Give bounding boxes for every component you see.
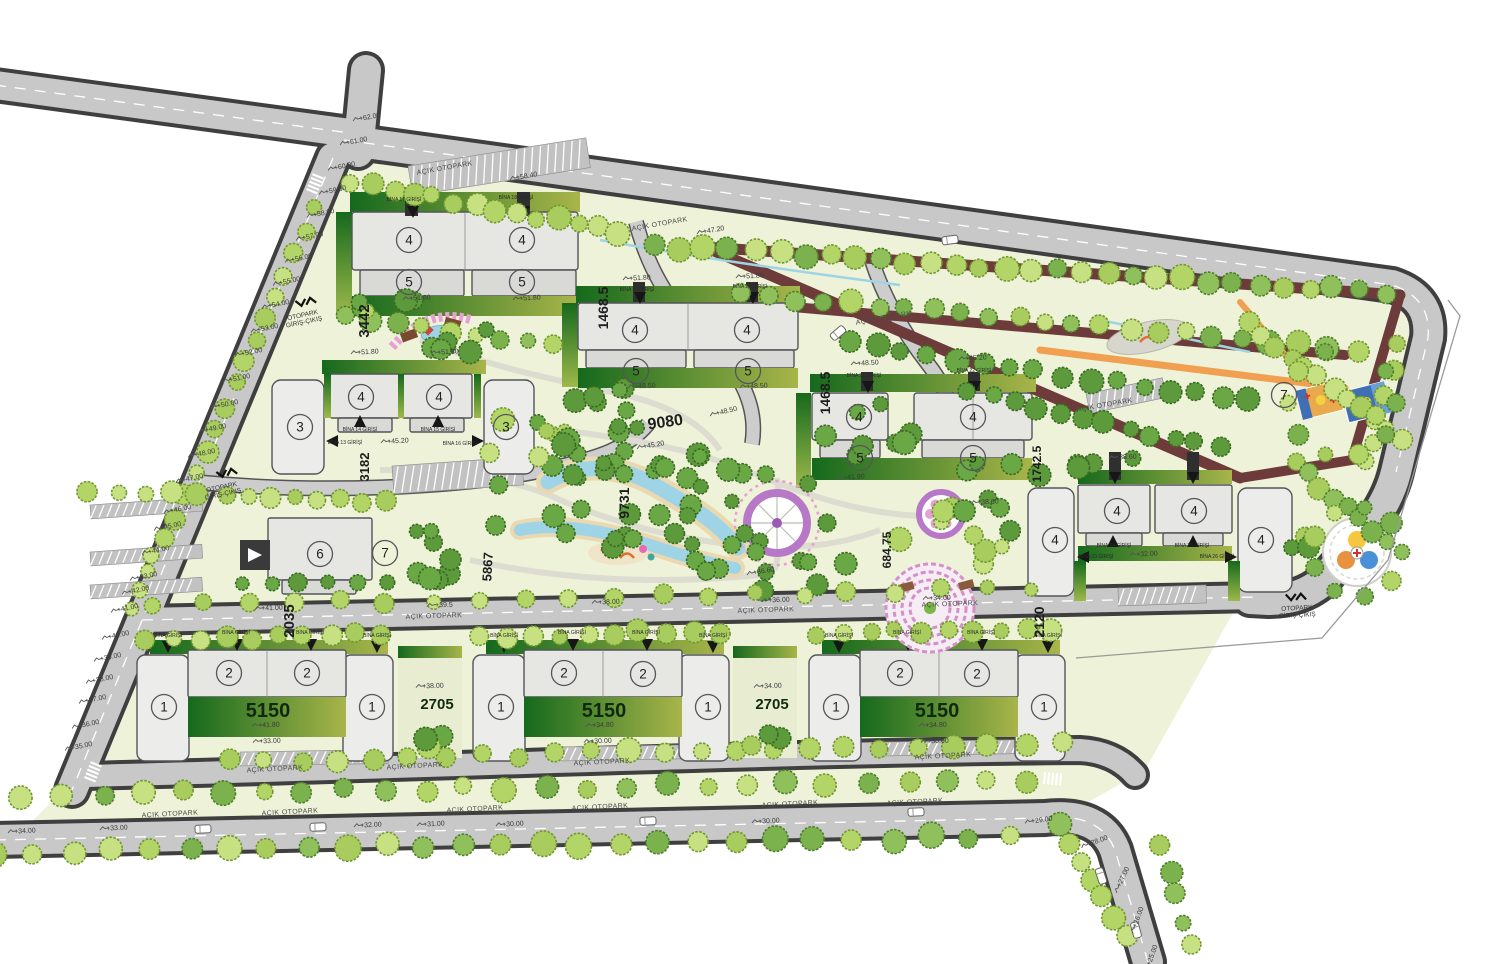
- area-figure: 1468.5: [595, 286, 611, 329]
- tree: [1063, 315, 1080, 332]
- strip-a: [352, 296, 578, 316]
- tree: [886, 585, 903, 602]
- tree: [1108, 372, 1125, 389]
- building-entrance-label: BİNA GİRİŞİ: [154, 632, 182, 639]
- car: [640, 817, 656, 826]
- tree: [605, 222, 629, 246]
- tree: [220, 749, 240, 769]
- tree: [288, 490, 303, 505]
- tree: [559, 590, 576, 607]
- tree: [1071, 262, 1092, 283]
- tree: [1197, 272, 1219, 294]
- elevation-label: +45.20: [965, 354, 987, 362]
- tree: [843, 246, 866, 269]
- tree: [665, 524, 685, 544]
- tree: [557, 524, 575, 542]
- tree: [1125, 267, 1143, 285]
- tree: [611, 834, 632, 855]
- tree: [1016, 771, 1038, 793]
- tree: [64, 842, 86, 864]
- tree: [410, 524, 424, 538]
- tree: [584, 387, 604, 407]
- unit-number: 4: [743, 323, 751, 338]
- tree: [211, 781, 236, 806]
- tree: [891, 343, 908, 360]
- tree: [144, 598, 160, 614]
- gap-hedge-2: [733, 646, 797, 658]
- tree: [630, 421, 644, 435]
- tree: [579, 781, 597, 799]
- tree: [958, 383, 975, 400]
- tree: [1011, 307, 1029, 325]
- hedge-c: [322, 360, 486, 374]
- tree: [800, 554, 816, 570]
- elevation-label: +41.80: [258, 722, 280, 730]
- tree: [566, 833, 592, 859]
- tree: [799, 738, 820, 759]
- tree: [970, 259, 988, 277]
- plaza1-center: [772, 518, 782, 528]
- tree: [77, 482, 97, 502]
- tree: [1051, 404, 1070, 423]
- tree: [423, 187, 439, 203]
- tree: [9, 786, 32, 809]
- elevation-label: +41.90: [843, 473, 865, 481]
- tree: [604, 625, 625, 646]
- tree: [797, 588, 813, 604]
- tree: [976, 734, 998, 756]
- car: [195, 825, 211, 834]
- unit-number: 4: [631, 323, 639, 338]
- car-body: [908, 808, 924, 817]
- car-body: [310, 823, 326, 832]
- tree: [510, 749, 528, 767]
- tree: [1059, 834, 1080, 855]
- tree: [1288, 361, 1308, 381]
- tree: [1137, 379, 1153, 395]
- unit-number: 4: [405, 233, 413, 248]
- building-entrance-label: BİNA 16 GİRİŞİ: [443, 440, 478, 447]
- tree: [1185, 432, 1202, 449]
- tree: [723, 536, 740, 553]
- tree: [1222, 273, 1242, 293]
- tree: [1123, 421, 1139, 437]
- tree: [1020, 260, 1042, 282]
- tree: [1358, 501, 1372, 515]
- tree: [654, 584, 673, 603]
- tree: [132, 781, 156, 805]
- tree: [1144, 266, 1167, 289]
- tree: [700, 779, 717, 796]
- tree: [321, 575, 335, 589]
- tree: [459, 340, 482, 363]
- tree: [1350, 280, 1368, 298]
- elevation-label: +45.20: [387, 437, 409, 445]
- tree: [836, 582, 855, 601]
- hedge-f: [1078, 470, 1232, 484]
- tree: [414, 318, 429, 333]
- tree: [800, 476, 816, 492]
- tree: [726, 832, 747, 853]
- lawn-b-left: [562, 303, 578, 387]
- elevation-label: +51.80: [409, 294, 431, 302]
- tree: [1159, 381, 1182, 404]
- unit-number: 6: [316, 547, 324, 562]
- tree: [1001, 359, 1018, 376]
- building-entrance-label: BİNA GİRİŞİ: [893, 629, 921, 636]
- elevation-label: +32.00: [1136, 550, 1158, 558]
- building-entrance-label: BİNA 24 GİRİŞİ: [1097, 542, 1132, 549]
- elevation-label: +30.60: [927, 738, 949, 746]
- building-entrance-label: BİNA 22 GİRİŞİ: [957, 367, 992, 374]
- unit-number: 2: [560, 666, 568, 681]
- building-entrance-label: BİNA 23 GİRİŞİ: [1079, 553, 1114, 560]
- tree: [763, 826, 789, 852]
- tree: [617, 779, 636, 798]
- tree: [959, 830, 978, 849]
- unit-number: 5: [856, 451, 864, 466]
- tree: [413, 837, 434, 858]
- site-plan-drawing: +62.00+61.00+60.00+59.00+58.00+57.00+56.…: [0, 0, 1500, 964]
- tree: [1377, 426, 1394, 443]
- area-figure: 2035: [281, 604, 298, 637]
- building-entrance-label: BİNA GİRİŞİ: [490, 632, 518, 639]
- tree: [864, 624, 881, 641]
- tree: [737, 775, 757, 795]
- lawn-figure: 5150: [915, 700, 960, 722]
- building-entrance-label: BİNA GİRİŞİ: [363, 632, 391, 639]
- tree: [479, 322, 494, 337]
- tree: [1121, 319, 1142, 340]
- hedge-d: [810, 374, 1036, 392]
- tree: [859, 773, 879, 793]
- tree: [1348, 341, 1369, 362]
- tree: [1378, 363, 1394, 379]
- tree: [174, 780, 194, 800]
- tree: [376, 832, 399, 855]
- tree: [1006, 392, 1025, 411]
- elevation-label: +34.80: [592, 722, 614, 730]
- unit-number: 1: [704, 700, 712, 715]
- tree: [1175, 915, 1190, 930]
- lawn-a-left: [336, 212, 352, 316]
- elevation-label: +38.60: [977, 498, 999, 506]
- tree: [808, 627, 825, 644]
- tree: [454, 777, 471, 794]
- tree: [947, 255, 967, 275]
- tree: [1377, 285, 1395, 303]
- elevation-label: +32.00: [360, 821, 382, 829]
- tree: [644, 234, 665, 255]
- tree: [260, 488, 281, 509]
- unit-number: 1: [832, 700, 840, 715]
- tree: [1302, 281, 1320, 299]
- elevation-label: +33.00: [259, 738, 281, 746]
- building-entrance-label: BİNA GİRİŞİ: [967, 629, 995, 636]
- tree: [748, 585, 763, 600]
- tree: [257, 784, 273, 800]
- building-entrance-label: BİNA 18 GİRİŞİ: [499, 194, 534, 201]
- tree: [256, 839, 276, 859]
- tree: [335, 835, 361, 861]
- tower-f-right: [1238, 488, 1292, 592]
- tree: [539, 423, 554, 438]
- tree: [345, 623, 364, 642]
- tree: [563, 389, 586, 412]
- lawn-strip: [398, 374, 404, 418]
- tree: [135, 630, 155, 650]
- tree: [1379, 534, 1394, 549]
- tree: [490, 476, 508, 494]
- tree: [794, 245, 818, 269]
- tree: [1274, 278, 1294, 298]
- tree: [1016, 734, 1038, 756]
- tree: [893, 431, 917, 455]
- tree: [50, 784, 72, 806]
- tree: [444, 195, 463, 214]
- building-entrance-label: BİNA GİRİŞİ: [825, 632, 853, 639]
- tree: [951, 303, 968, 320]
- tree: [388, 312, 409, 333]
- tree: [337, 306, 355, 324]
- tree: [1001, 454, 1022, 475]
- tree: [700, 588, 717, 605]
- tree: [758, 466, 775, 483]
- play-item: [639, 545, 647, 553]
- tree: [725, 494, 739, 508]
- tree: [688, 832, 708, 852]
- tree: [1092, 411, 1114, 433]
- tree: [800, 827, 824, 851]
- tree: [833, 737, 854, 758]
- lot-cluster-f: [1118, 585, 1207, 606]
- area-figure: 2120: [1031, 606, 1047, 637]
- tree: [1382, 571, 1401, 590]
- tree: [1320, 276, 1342, 298]
- tree: [986, 387, 1002, 403]
- tree: [871, 248, 891, 268]
- elevation-label: +51.80: [357, 348, 379, 356]
- tree: [747, 543, 764, 560]
- area-figure: 5867: [479, 552, 495, 582]
- tree: [941, 621, 958, 638]
- tree: [977, 771, 995, 789]
- unit-number: 2: [225, 666, 233, 681]
- tree: [965, 526, 983, 544]
- tree: [1387, 394, 1405, 412]
- tree: [241, 489, 256, 504]
- tree: [507, 203, 526, 222]
- tree: [249, 332, 266, 349]
- tree: [917, 346, 935, 364]
- building-entrance-label: BİNA 13 GİRİŞİ: [328, 439, 363, 446]
- tree: [841, 830, 861, 850]
- tree: [818, 514, 836, 532]
- tree: [717, 458, 740, 481]
- building-entrance-label: BİNA 21 GİRİŞİ: [847, 372, 882, 379]
- tree: [697, 562, 715, 580]
- tree: [1251, 275, 1272, 296]
- tree: [1356, 588, 1373, 605]
- car: [310, 823, 326, 832]
- tree: [1349, 444, 1369, 464]
- elevation-label: +30.00: [502, 820, 524, 828]
- tree: [195, 594, 211, 610]
- unit-number: 4: [1257, 533, 1265, 548]
- tree: [822, 245, 841, 264]
- tree: [921, 252, 942, 273]
- tree: [1102, 906, 1126, 930]
- tree: [1090, 315, 1109, 334]
- tree: [1140, 427, 1160, 447]
- tree: [611, 419, 627, 435]
- tree: [331, 591, 349, 609]
- unit-number: 5: [632, 364, 640, 379]
- tree: [453, 834, 474, 855]
- elevation-label: +31.00: [423, 820, 445, 828]
- tree: [1168, 431, 1184, 447]
- car: [908, 808, 924, 817]
- elevation-label: +38.00: [422, 683, 444, 691]
- tree: [925, 299, 945, 319]
- tree: [552, 433, 576, 457]
- tree: [362, 173, 384, 195]
- tree: [545, 743, 564, 762]
- tree: [1048, 259, 1067, 278]
- tree: [376, 491, 396, 511]
- tree: [419, 567, 442, 590]
- tree: [353, 494, 371, 512]
- tree: [873, 397, 888, 412]
- tree: [424, 524, 439, 539]
- tree: [994, 623, 1009, 638]
- tree: [112, 485, 127, 500]
- tree: [547, 205, 571, 229]
- tree: [680, 507, 696, 523]
- tree: [1178, 323, 1195, 340]
- car: [942, 235, 959, 245]
- tree: [814, 294, 831, 311]
- tree: [1023, 360, 1042, 379]
- area-figure: 3442: [356, 304, 373, 337]
- building-entrance-label: BİNA 20 GİRİŞİ: [733, 283, 768, 290]
- tree: [937, 770, 959, 792]
- tree: [815, 425, 836, 446]
- tree: [322, 625, 342, 645]
- tree: [745, 239, 767, 261]
- elevation-label: +34.00: [14, 827, 36, 835]
- tree: [1052, 367, 1073, 388]
- tree: [1327, 505, 1342, 520]
- tree: [1213, 387, 1235, 409]
- unit-number: 4: [855, 410, 863, 425]
- tree: [813, 774, 836, 797]
- tree: [612, 383, 627, 398]
- tree: [1091, 886, 1112, 907]
- tree: [531, 831, 557, 857]
- unit-number: 4: [518, 233, 526, 248]
- unit-number: 4: [357, 390, 365, 405]
- unit-number: 5: [744, 364, 752, 379]
- area-figure: 9731: [616, 487, 632, 518]
- tree: [646, 831, 669, 854]
- tree: [483, 200, 506, 223]
- tree: [932, 500, 954, 522]
- car-body: [942, 235, 959, 245]
- tree: [289, 573, 307, 591]
- building-entrance-label: BİNA 15 GİRİŞİ: [421, 426, 456, 433]
- tree: [308, 492, 325, 509]
- tree: [716, 237, 738, 259]
- tree: [693, 449, 708, 464]
- tree: [1072, 853, 1090, 871]
- tree: [474, 745, 491, 762]
- tree: [771, 240, 794, 263]
- lawn-figure: 5150: [246, 700, 291, 722]
- tree: [694, 743, 711, 760]
- tree: [774, 770, 798, 794]
- tree: [544, 335, 562, 353]
- tree: [266, 577, 280, 591]
- elevation-label: +38.00: [598, 599, 620, 607]
- tree: [563, 465, 583, 485]
- area-figure: 3182: [357, 453, 372, 482]
- unit-number: 5: [518, 275, 526, 290]
- building-entrance-label: BİNA 14 GİRİŞİ: [343, 426, 378, 433]
- lawn-strip: [324, 374, 331, 418]
- tree: [1392, 430, 1412, 450]
- lawn-figure: 2705: [420, 696, 453, 713]
- unit-number: 7: [1280, 388, 1288, 403]
- lawn-strip: [1074, 561, 1086, 601]
- tree: [870, 740, 887, 757]
- tree: [521, 333, 536, 348]
- elevation-label: +41.00: [261, 605, 283, 613]
- tree: [867, 333, 891, 357]
- tree: [139, 839, 159, 859]
- tree: [1211, 437, 1230, 456]
- tree: [656, 743, 675, 762]
- tree: [23, 845, 42, 864]
- lawn-figure: 2705: [755, 696, 788, 713]
- tree: [571, 215, 588, 232]
- elevation-label: +30.00: [590, 738, 612, 746]
- tree: [380, 575, 395, 590]
- hedge-a: [350, 192, 580, 212]
- elevation-label: +51.80: [437, 348, 459, 356]
- tree: [1000, 521, 1020, 541]
- tree: [161, 481, 183, 503]
- tree: [1367, 406, 1386, 425]
- gap-hedge-1: [398, 646, 462, 658]
- building-entrance-label: BİNA 19 GİRİŞİ: [620, 286, 655, 293]
- tree: [649, 505, 670, 526]
- area-figure: 1742.5: [1030, 445, 1044, 482]
- tree: [839, 289, 863, 313]
- tree: [376, 780, 397, 801]
- unit-number: 2: [973, 667, 981, 682]
- lawn-strip: [1228, 561, 1240, 601]
- tree: [529, 447, 549, 467]
- elevation-label: +51.80: [742, 272, 764, 280]
- tree: [742, 736, 761, 755]
- tree: [331, 490, 349, 508]
- tree: [236, 577, 249, 590]
- tree: [217, 836, 242, 861]
- tree: [1053, 732, 1073, 752]
- building-entrance-label: BİNA GİRİŞİ: [558, 629, 586, 636]
- tree: [327, 751, 349, 773]
